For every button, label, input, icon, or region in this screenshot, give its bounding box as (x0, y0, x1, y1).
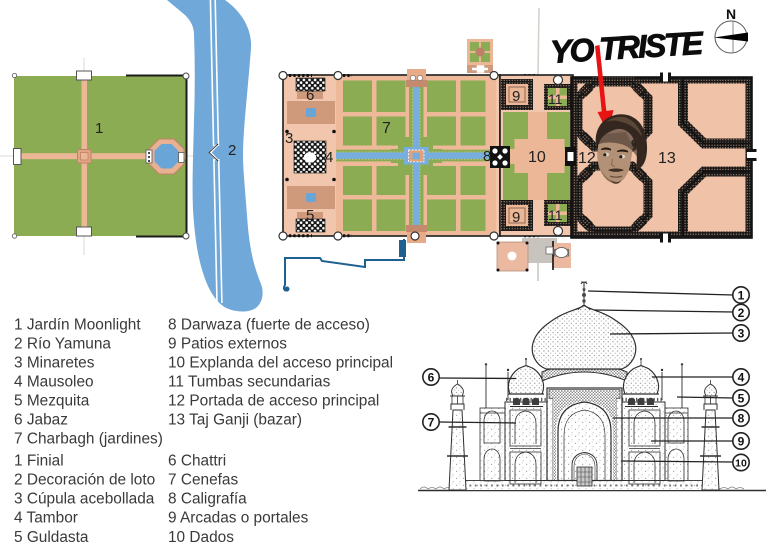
svg-text:13: 13 (658, 150, 676, 167)
svg-text:6 Chattri: 6 Chattri (168, 452, 226, 469)
svg-text:9 Patios externos: 9 Patios externos (168, 336, 287, 353)
svg-text:12 Portada de acceso principal: 12 Portada de acceso principal (168, 393, 379, 410)
svg-text:12: 12 (578, 150, 596, 167)
svg-text:7 Charbagh (jardines): 7 Charbagh (jardines) (14, 431, 163, 448)
svg-text:4 Tambor: 4 Tambor (14, 510, 78, 527)
svg-text:1: 1 (738, 289, 745, 303)
svg-text:6: 6 (428, 371, 435, 385)
svg-text:6 Jabaz: 6 Jabaz (14, 412, 68, 429)
svg-text:3 Minaretes: 3 Minaretes (14, 355, 95, 372)
svg-text:2 Río Yamuna: 2 Río Yamuna (14, 336, 111, 353)
svg-text:4: 4 (325, 149, 333, 166)
svg-text:1 Finial: 1 Finial (14, 452, 64, 469)
svg-text:1 Jardín Moonlight: 1 Jardín Moonlight (14, 317, 141, 334)
svg-text:8 Darwaza (fuerte de acceso): 8 Darwaza (fuerte de acceso) (168, 317, 370, 334)
svg-text:10: 10 (528, 149, 546, 166)
svg-text:10: 10 (735, 458, 747, 470)
svg-text:5: 5 (306, 207, 314, 224)
svg-text:7: 7 (382, 120, 391, 137)
svg-text:13 Taj Ganji (bazar): 13 Taj Ganji (bazar) (168, 412, 302, 429)
svg-text:9 Arcadas o portales: 9 Arcadas o portales (168, 510, 309, 527)
svg-text:2: 2 (228, 142, 236, 159)
svg-text:7 Cenefas: 7 Cenefas (168, 471, 238, 488)
svg-text:10 Dados: 10 Dados (168, 529, 234, 546)
svg-text:11 Tumbas secundarias: 11 Tumbas secundarias (168, 374, 331, 391)
svg-text:2: 2 (738, 306, 745, 320)
svg-text:3: 3 (285, 130, 293, 147)
svg-text:3 Cúpula acebollada: 3 Cúpula acebollada (14, 491, 155, 508)
svg-text:2 Decoración de loto: 2 Decoración de loto (14, 471, 155, 488)
svg-text:7: 7 (428, 416, 435, 430)
svg-text:1: 1 (95, 120, 103, 137)
svg-text:10 Explanda del acceso princip: 10 Explanda del acceso principal (168, 355, 393, 372)
svg-text:4: 4 (738, 371, 745, 385)
svg-text:8 Caligrafía: 8 Caligrafía (168, 491, 247, 508)
svg-text:8: 8 (738, 412, 745, 426)
svg-text:11: 11 (548, 207, 563, 223)
svg-text:5 Mezquita: 5 Mezquita (14, 393, 90, 410)
svg-text:5: 5 (738, 392, 745, 406)
svg-text:N: N (726, 6, 736, 22)
svg-text:9: 9 (512, 88, 520, 105)
svg-text:8: 8 (483, 148, 491, 165)
svg-text:5 Guldasta: 5 Guldasta (14, 529, 89, 546)
svg-text:3: 3 (738, 327, 745, 341)
svg-text:9: 9 (738, 435, 745, 449)
svg-text:4 Mausoleo: 4 Mausoleo (14, 374, 94, 391)
svg-text:9: 9 (512, 209, 520, 226)
svg-text:11: 11 (548, 91, 563, 107)
